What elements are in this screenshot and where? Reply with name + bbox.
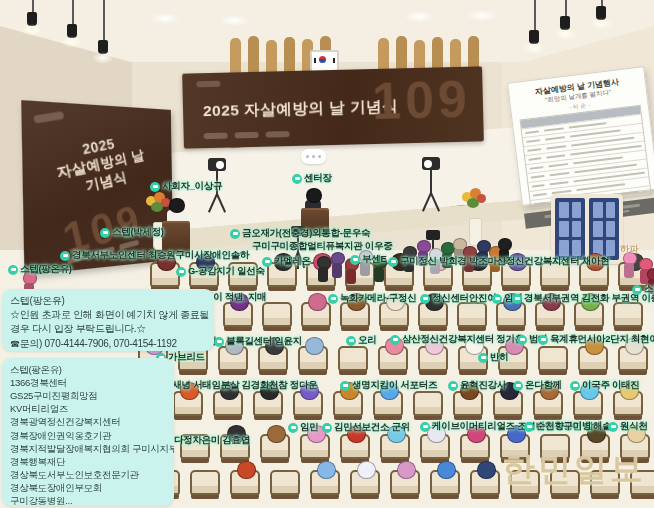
chat-bubble-icon <box>632 285 642 295</box>
chat-bubble-icon <box>262 257 272 267</box>
chat-line: 경북행복재단 <box>10 455 166 468</box>
chat-line: 경북광역정신건강복지센터 <box>10 415 166 428</box>
avatar-nametag: 반히 <box>478 351 508 364</box>
avatar-nametag: 금오재가(전충경)외통합-문우숙 <box>230 227 370 240</box>
chat-bubble-icon <box>538 335 548 345</box>
avatar-nametag: 온다함께 <box>513 379 562 392</box>
chat-line: ☆인원 초과로 인해 화면이 예기치 않게 종료될 <box>10 308 206 322</box>
chat-bubble-icon <box>350 255 360 265</box>
avatar-nametag: 카멜레온 <box>262 255 311 268</box>
chat-bubble-icon <box>346 336 356 346</box>
avatar-nametag: 삼산정신건강복지센터 정기훈 <box>390 333 524 346</box>
chat-bubble-icon <box>388 257 398 267</box>
chat-line: 경상북도서부노인보호전문기관 <box>10 468 166 481</box>
chat-bubble-icon <box>420 294 430 304</box>
avatar-nametag: 김민선보건소 군위 <box>322 421 410 434</box>
chat-bubble-icon <box>390 335 400 345</box>
avatar-nametag: 구미정신 박희경 박조마산정신건강복지센터 채아현 <box>388 255 609 268</box>
avatar-nametag: 생명지킴이 서포터즈 <box>340 379 437 392</box>
chat-bubble-icon <box>150 182 160 192</box>
avatar-nametag: 순천향구미병 <box>524 420 591 433</box>
avatar-nametag: 원식천 <box>608 420 648 433</box>
chat-line: KV머티리얼즈 <box>10 402 166 415</box>
chat-line: 스텝(팡온유) <box>10 363 166 376</box>
chat-bubble-icon <box>8 265 18 275</box>
avatar-nametag: 블록길센터 임윤지 <box>214 335 302 348</box>
chat-bubble-icon <box>292 174 302 184</box>
avatar-nametag: 윤혁진강사 <box>448 379 506 392</box>
avatar-nametag: 정신센터안진여 <box>420 292 496 305</box>
avatar-nametag: 육계휴먼시아2단지 최현이 <box>538 333 654 346</box>
chat-line: ☎문의) 070-4144-7906, 070-4154-1192 <box>10 337 206 351</box>
chat-bubble-icon <box>60 251 70 261</box>
chat-bubble-icon <box>340 381 350 391</box>
chat-bubble-icon <box>420 422 430 432</box>
chat-bubble-icon <box>492 294 502 304</box>
avatar-nametag: 경북서부노인센터 최승원구미시장애인솔하 <box>60 249 249 262</box>
avatar-nametag: 하파 <box>620 243 638 256</box>
chat-bubble-icon <box>512 294 522 304</box>
chat-bubble-icon <box>524 422 534 432</box>
avatar-nametag: 오리 <box>346 334 376 347</box>
chat-line: 경상북도장애인부모회 <box>10 481 166 494</box>
avatar-nametag: 구미구미종합멀티퓨복지관 이우중 <box>252 240 392 253</box>
avatar-nametag: 스텝(박세정) <box>100 226 164 239</box>
chat-bubble-icon <box>328 294 338 304</box>
avatar-nametag: 스텝(팡온유) <box>8 263 72 276</box>
chat-bubble-icon <box>478 353 488 363</box>
avatar-nametag: 부센E <box>350 253 386 266</box>
avatar-nametag: G-공감지기 일선숙 <box>176 265 265 278</box>
avatar-nametag: 임민 <box>288 421 318 434</box>
chat-bubble-icon <box>100 228 110 238</box>
avatar-nametag: 이국주 이태진 <box>570 379 640 392</box>
chat-line: 경북장애인권익옹호기관 <box>10 429 166 442</box>
avatar-nametag: 센터장 <box>292 172 332 185</box>
news-watermark: 한민일보 <box>502 447 646 492</box>
chat-line: 1366경북센터 <box>10 376 166 389</box>
chat-bubble-icon <box>448 381 458 391</box>
chat-bubble-icon <box>513 381 523 391</box>
chat-bubble-icon <box>517 335 527 345</box>
chat-bubble-notice: 스텝(팡온유)☆인원 초과로 인해 화면이 예기치 않게 종료될경우 다시 입장… <box>2 289 214 351</box>
chat-line: 경우 다시 입장 부탁드립니다.☆ <box>10 322 206 336</box>
chat-line: 구미강동병원... <box>10 494 166 506</box>
avatar-nametag: 녹화카메라-구정신 <box>328 292 416 305</box>
avatar-nametag: 다정차은미 김효엽 <box>162 434 250 447</box>
chat-line: 스텝(팡온유) <box>10 294 206 308</box>
chat-bubble-icon <box>230 229 240 239</box>
chat-bubble-icon <box>570 381 580 391</box>
chat-bubble-icon <box>322 423 332 433</box>
chat-bubble-icon <box>608 422 618 432</box>
avatar-nametag: 스탭( <box>632 283 654 296</box>
chat-line: 경북지적발달장애복지협의회 구미시지부 <box>10 442 166 455</box>
chat-bubble-icon <box>176 267 186 277</box>
chat-bubble-icon <box>288 423 298 433</box>
chat-line: GS25구미진평희망점 <box>10 389 166 402</box>
avatar-nametag: 사회자_이상규 <box>150 180 222 193</box>
chat-bubble-org-list: 스텝(팡온유)1366경북센터GS25구미진평희망점KV머티리얼즈경북광역정신건… <box>2 358 174 506</box>
chat-bubble-icon <box>214 337 224 347</box>
